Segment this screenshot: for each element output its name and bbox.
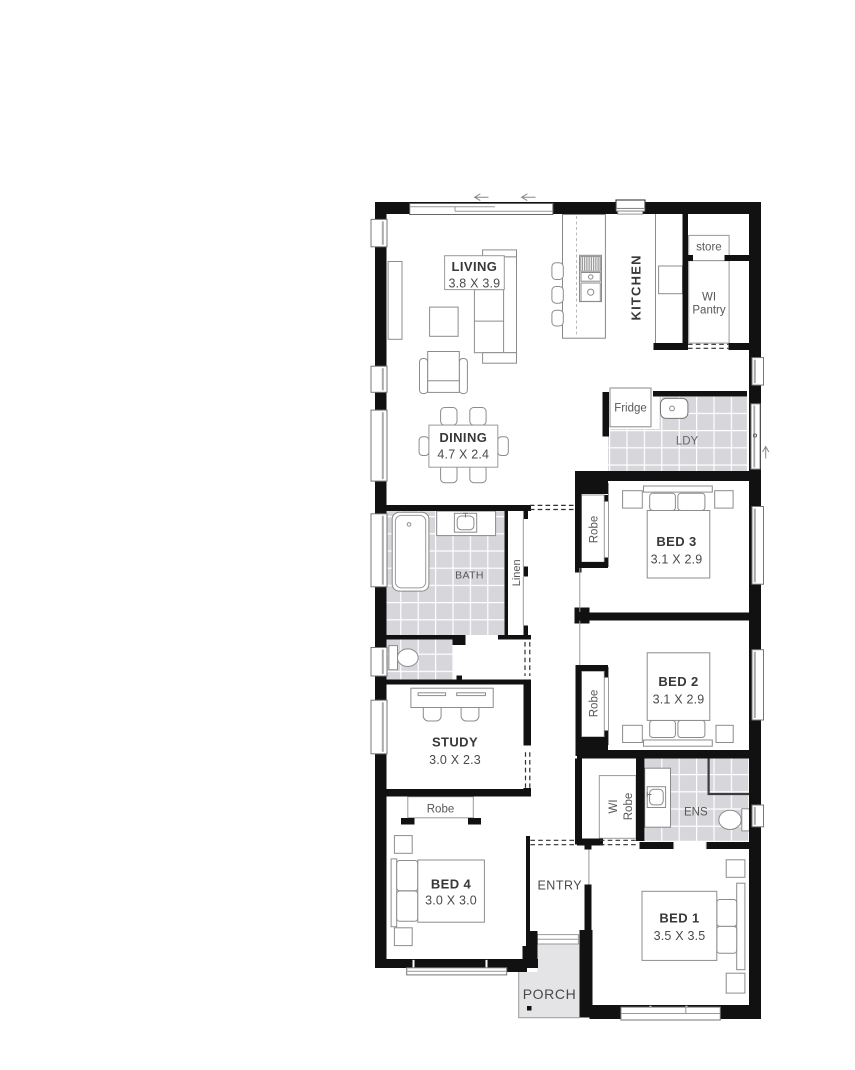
svg-text:BED 3: BED 3 [656,534,696,549]
svg-text:WI: WI [702,292,716,304]
svg-text:LIVING: LIVING [452,259,498,274]
svg-text:BED 1: BED 1 [659,910,699,925]
svg-text:store: store [696,242,722,254]
svg-text:STUDY: STUDY [432,734,478,749]
svg-text:3.1 X 2.9: 3.1 X 2.9 [651,553,703,567]
svg-text:Fridge: Fridge [614,403,647,415]
svg-text:BATH: BATH [455,570,484,582]
svg-text:PORCH: PORCH [523,986,577,1002]
svg-text:KITCHEN: KITCHEN [629,254,644,320]
svg-text:Linen: Linen [511,559,523,586]
svg-text:ENTRY: ENTRY [537,878,582,892]
svg-text:ENS: ENS [684,807,708,819]
svg-text:BED 4: BED 4 [431,876,472,891]
svg-text:3.5 X 3.5: 3.5 X 3.5 [654,929,706,943]
svg-text:3.1 X 2.9: 3.1 X 2.9 [653,693,705,707]
svg-text:4.7 X 2.4: 4.7 X 2.4 [437,447,489,461]
svg-text:Pantry: Pantry [692,305,725,317]
svg-text:Robe: Robe [588,516,600,544]
svg-text:Robe: Robe [588,690,600,718]
svg-text:Robe: Robe [427,804,455,816]
svg-text:BED 2: BED 2 [658,674,698,689]
svg-text:3.0 X 2.3: 3.0 X 2.3 [429,753,481,767]
svg-text:WI: WI [608,799,620,813]
svg-text:LDY: LDY [676,436,699,448]
svg-text:3.0 X 3.0: 3.0 X 3.0 [425,894,477,908]
svg-text:Robe: Robe [623,793,635,821]
svg-text:DINING: DINING [439,430,487,445]
svg-text:3.8 X 3.9: 3.8 X 3.9 [448,276,500,290]
